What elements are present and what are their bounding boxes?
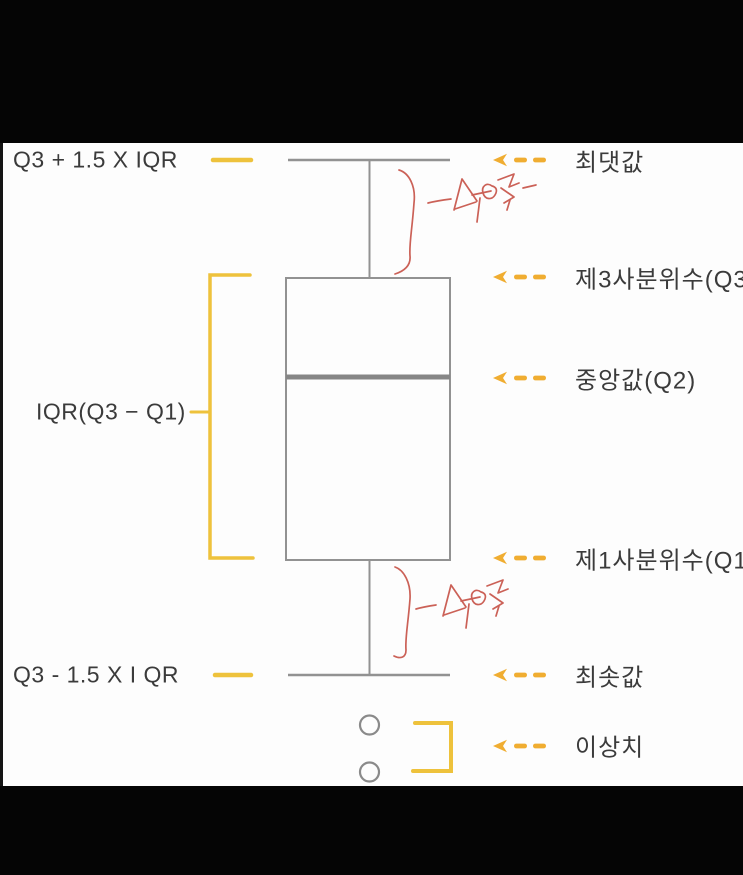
outlier-point-1 [360, 716, 379, 735]
dashed-arrow-left-icon [492, 153, 548, 167]
label-iqr: IQR(Q3 − Q1) [36, 399, 186, 426]
dashed-arrow-left-icon [492, 739, 548, 753]
label-median: 중앙값(Q2) [575, 361, 696, 396]
outlier-point-2 [360, 763, 379, 782]
dashed-arrow-left-icon [492, 668, 548, 682]
letterbox-bottom [0, 786, 743, 875]
handwritten-annotation-lower-whisker [394, 567, 508, 658]
label-outliers: 이상치 [575, 728, 644, 763]
label-min: 최솟값 [575, 658, 644, 693]
boxplot-lines [286, 160, 450, 782]
dashed-arrow-left-icon [492, 551, 548, 565]
dashed-arrow-left-icon [492, 270, 548, 284]
iqr-box [286, 278, 450, 560]
label-lower-fence: Q3 - 1.5 X I QR [13, 662, 179, 689]
iqr-bracket [210, 275, 253, 558]
dashed-arrow-left-icon [492, 371, 548, 385]
label-upper-fence: Q3 + 1.5 X IQR [13, 147, 178, 174]
label-q1: 제1사분위수(Q1) [575, 541, 743, 576]
label-q3: 제3사분위수(Q3) [575, 260, 743, 295]
screenshot-root: Q3 + 1.5 X IQR IQR(Q3 − Q1) Q3 - 1.5 X I… [0, 0, 743, 875]
handwritten-annotation-upper-whisker [395, 170, 536, 274]
diagram-canvas: Q3 + 1.5 X IQR IQR(Q3 − Q1) Q3 - 1.5 X I… [0, 143, 743, 786]
label-max: 최댓값 [575, 143, 644, 178]
outlier-bracket [413, 723, 451, 771]
letterbox-top [0, 0, 743, 143]
gold-marks [191, 160, 451, 771]
